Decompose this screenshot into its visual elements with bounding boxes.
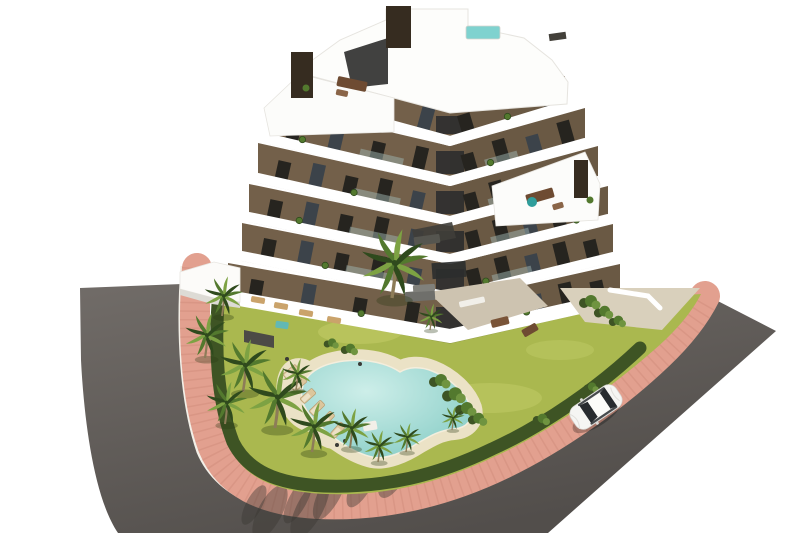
chimney [386, 6, 411, 48]
corner-glazing [436, 151, 464, 174]
balcony-plant [299, 136, 305, 142]
accent-dot [587, 197, 594, 204]
accent-dot [358, 362, 362, 366]
balcony-plant [358, 310, 364, 316]
balcony-plant [296, 217, 302, 223]
aerial-render [0, 0, 800, 533]
balcony-plant [504, 113, 510, 119]
accent-dot [335, 443, 339, 447]
chimney [291, 52, 313, 98]
accent-dot [527, 197, 537, 207]
balcony-plant [322, 262, 328, 268]
corner-glazing-ground [431, 261, 466, 279]
render-canvas [0, 0, 800, 533]
rooftop-pool [466, 26, 500, 39]
balcony-plant [487, 159, 493, 165]
lawn-light-patch [526, 340, 594, 360]
accent-dot [303, 85, 310, 92]
balcony-plant [351, 189, 357, 195]
corner-glazing [436, 191, 464, 214]
accent-dot [285, 357, 289, 361]
chimney [574, 160, 588, 198]
